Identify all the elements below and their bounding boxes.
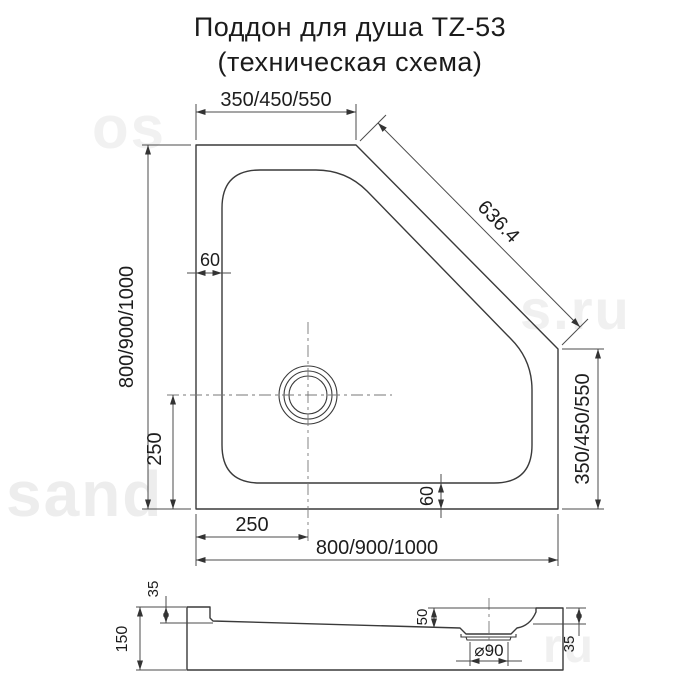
technical-drawing: 350/450/550 636.4 800/900/1000 (0, 0, 700, 700)
dim-right-height: 350/450/550 (562, 349, 604, 509)
dim-inset-left: 60 (187, 250, 231, 273)
title-block: Поддон для душа TZ-53 (техническая схема… (0, 12, 700, 78)
dim-drain-offset-bottom-label: 250 (144, 432, 166, 465)
dim-rim-right: 35 (533, 608, 586, 652)
side-view: 150 35 50 ⌀90 (114, 581, 586, 670)
page-title: Поддон для душа TZ-53 (0, 12, 700, 43)
top-view: 350/450/550 636.4 800/900/1000 (116, 89, 604, 566)
dim-bottom-width-label: 800/900/1000 (316, 537, 438, 559)
dim-rim-left-label: 35 (145, 581, 162, 598)
schematic-page: sand os s.ru ru Поддон для душа TZ-53 (т… (0, 0, 700, 700)
dim-drain-diameter-label: ⌀90 (474, 641, 503, 660)
dim-top-width: 350/450/550 (196, 89, 356, 140)
dim-drain-offset-left: 250 (196, 514, 308, 566)
dim-drain-offset-left-label: 250 (235, 514, 268, 536)
dim-basin-depth-label: 50 (414, 609, 431, 626)
dim-inset-bottom: 60 (417, 474, 441, 518)
dim-basin-depth: 50 (414, 608, 536, 628)
drain-flange-detail (461, 634, 516, 640)
dim-total-height: 150 (114, 607, 186, 670)
dim-inset-left-label: 60 (200, 250, 220, 270)
dim-diagonal-label: 636.4 (473, 196, 524, 247)
dim-top-width-label: 350/450/550 (220, 89, 331, 111)
dim-total-height-label: 150 (114, 626, 131, 653)
dim-left-height-label: 800/900/1000 (116, 266, 138, 388)
dim-rim-left: 35 (145, 581, 213, 623)
dim-inset-bottom-label: 60 (417, 486, 437, 506)
dim-drain-diameter: ⌀90 (456, 641, 522, 666)
dim-diagonal: 636.4 (360, 115, 588, 345)
dim-right-height-label: 350/450/550 (572, 373, 594, 484)
tray-outer-outline (196, 145, 558, 509)
dim-rim-right-label: 35 (561, 636, 578, 653)
page-subtitle: (техническая схема) (0, 47, 700, 78)
